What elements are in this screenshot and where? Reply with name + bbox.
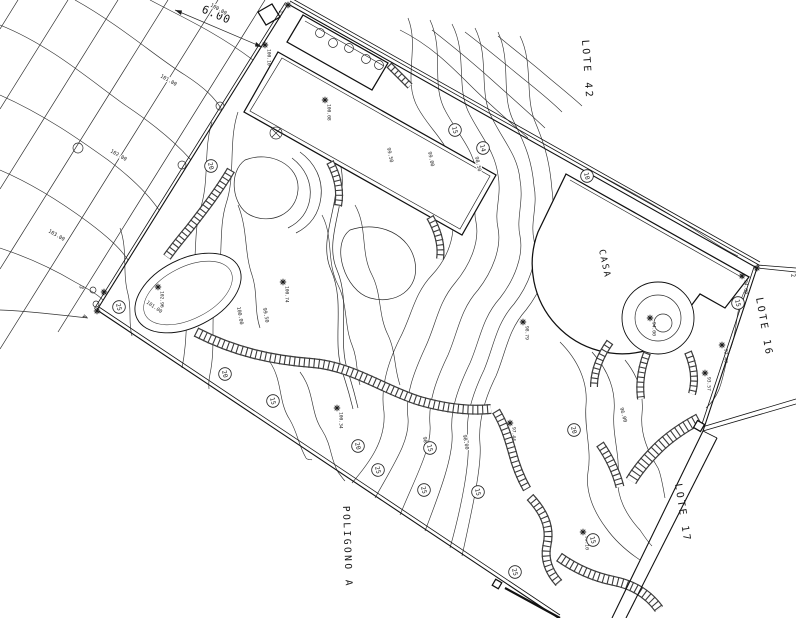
label-poligono-a: POLIGONO A <box>340 506 354 589</box>
spot-elevation-marker <box>739 273 745 279</box>
spot-elevation: 93.57 <box>702 370 712 391</box>
contour-line <box>400 30 528 138</box>
grid-line <box>0 0 118 189</box>
spot-elevation-value: 100.74 <box>284 286 290 303</box>
spot-elevation: 100.10 <box>262 42 272 66</box>
contour-line <box>465 32 562 112</box>
contour-line <box>355 205 400 385</box>
corner-point-marker <box>101 289 107 295</box>
corner-number: 3 <box>77 285 85 290</box>
planting-bed <box>234 157 298 219</box>
contour-line <box>0 25 191 160</box>
plant-tag: 20 <box>219 368 232 381</box>
pond-outline <box>122 237 254 349</box>
contour-elevation-label: 99.50 <box>261 307 270 323</box>
contour-line <box>0 248 103 300</box>
round-terrace-outer <box>622 282 694 354</box>
spot-elevation: 92.40 <box>719 342 729 363</box>
plant-tag: 20 <box>205 160 218 173</box>
spot-elevation: 98.79 <box>520 319 530 340</box>
boundary-stub <box>757 268 796 272</box>
pond <box>122 237 254 349</box>
corner-number: 2 <box>789 273 796 278</box>
lote17-road-end <box>703 431 717 438</box>
contour-line <box>120 228 132 336</box>
plant-tag: 10 <box>581 170 594 183</box>
lot-corner: 1 <box>277 2 291 14</box>
contour-elevation-label: 96.00 <box>618 407 628 423</box>
steps-band <box>688 352 694 394</box>
fence-line <box>703 404 796 431</box>
steps-band <box>640 353 647 399</box>
retaining-wall <box>296 152 321 233</box>
top-building <box>244 4 496 235</box>
steps-band <box>430 217 441 259</box>
spot-elevation: 100.34 <box>334 405 344 429</box>
plant-tag: 25 <box>113 301 126 314</box>
spot-elevation-marker <box>719 342 725 348</box>
s-boundary <box>99 307 560 615</box>
planting-bed <box>341 227 416 300</box>
label-lote-16: LOTE 16 <box>753 297 774 358</box>
corner-number: 1 <box>277 10 284 14</box>
label-lote-42: LOTE 42 <box>579 39 594 99</box>
spot-elevation-marker <box>334 405 340 411</box>
contour-elevation-label: 100.00 <box>235 306 244 325</box>
spot-elevation-marker <box>262 42 268 48</box>
contour-elevation-label: 102.00 <box>109 149 128 163</box>
contour-line <box>322 215 360 385</box>
steps-band-layer <box>688 352 694 394</box>
plant-tag: 20 <box>568 424 581 437</box>
lot-corner: 4 <box>80 308 100 319</box>
spot-elevation-marker <box>580 529 586 535</box>
plant-tag: 15 <box>587 534 600 547</box>
fence-line <box>702 399 796 427</box>
steps-band <box>530 497 559 583</box>
plant-tag: 25 <box>418 484 431 497</box>
spot-elevation-value: 100.34 <box>338 412 344 429</box>
corner-point-marker <box>754 265 760 271</box>
spot-elevation-value: 98.79 <box>524 326 530 340</box>
plant-tag: 20 <box>352 440 365 453</box>
spot-elevation-value: 102.96 <box>159 291 165 308</box>
spot-elevation: 100.74 <box>280 279 290 303</box>
grid-line <box>0 0 168 269</box>
spot-elevation-value: 97.44 <box>511 427 517 441</box>
plant-tag: 15 <box>449 124 462 137</box>
site-plan-canvas: 6.00 100.00101.00102.00103.00101.0099.50… <box>0 0 796 618</box>
contour-line <box>498 36 582 106</box>
spot-elevation-value: 94.00 <box>743 280 749 294</box>
contour-line <box>75 0 222 110</box>
retaining-wall <box>288 158 310 228</box>
contour-line <box>425 28 521 531</box>
spot-elevation-marker <box>507 420 513 426</box>
spot-elevation-value: 100.10 <box>266 49 272 66</box>
spot-elevation-value: 100.08 <box>326 104 332 121</box>
contour-line <box>400 24 499 515</box>
corner-number: 4 <box>80 314 88 319</box>
contour-elevation-label: 98.00 <box>461 434 470 450</box>
spot-elevation-marker <box>280 279 286 285</box>
plant-tag: 15 <box>732 297 745 310</box>
plant-tag: 15 <box>472 486 485 499</box>
plant-tag: 25 <box>372 464 385 477</box>
contour-line <box>432 30 545 128</box>
site-plan-screenshot: 6.00 100.00101.00102.00103.00101.0099.50… <box>0 0 796 618</box>
dimension-arrow <box>175 10 182 15</box>
s-boundary-thick <box>505 588 560 618</box>
tree-circle <box>216 102 224 110</box>
plant-tag: 15 <box>267 395 280 408</box>
grid-line <box>0 0 18 29</box>
spot-elevation-marker <box>520 319 526 325</box>
dimension-arrow <box>255 42 262 47</box>
spot-elevation-value: 93.57 <box>706 377 712 391</box>
plant-tag: 25 <box>509 566 522 579</box>
contour-line <box>0 310 88 318</box>
grid-line <box>0 0 68 109</box>
plant-tag: 15 <box>424 442 437 455</box>
spot-elevation-value: 92.40 <box>723 349 729 363</box>
contour-elevation-label: 103.00 <box>47 229 66 243</box>
plant-tag: 14 <box>477 142 490 155</box>
spot-elevation-marker <box>322 97 328 103</box>
spot-elevation-marker <box>647 315 653 321</box>
spot-elevation-marker <box>155 284 161 290</box>
steps-band <box>389 65 410 86</box>
steps-band <box>631 419 699 481</box>
gate-post <box>492 579 502 589</box>
boundary-stub <box>757 265 796 268</box>
contour-line <box>375 20 477 498</box>
casa-building <box>532 174 749 354</box>
spot-elevation-marker <box>702 370 708 376</box>
contour-elevation-label: 101.00 <box>159 74 178 88</box>
spot-elevation-value: 94.00 <box>651 322 657 336</box>
corner-point-marker <box>94 308 100 314</box>
corner-point-marker <box>285 2 291 8</box>
